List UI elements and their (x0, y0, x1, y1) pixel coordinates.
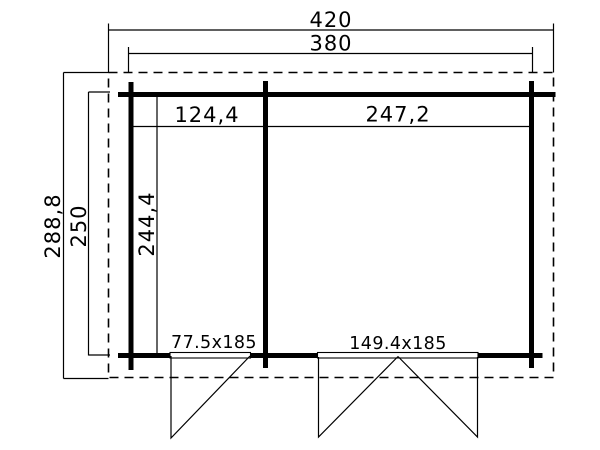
double-door: 149.4x185 (318, 334, 479, 437)
dim-interior-depth-label: 244,4 (135, 191, 159, 256)
dim-wall-depth: 250 (67, 92, 110, 356)
dim-wall-depth-label: 250 (67, 204, 91, 247)
single-door-swing (171, 356, 250, 438)
dim-wall-width: 380 (129, 32, 533, 73)
dim-wall-width-label: 380 (309, 32, 352, 56)
dim-overall-depth-label: 288,8 (41, 193, 65, 258)
dim-left-bay-label: 124,4 (174, 103, 239, 127)
single-door-size-label: 77.5x185 (171, 333, 257, 353)
dim-overall-width-label: 420 (309, 8, 352, 32)
single-door: 77.5x185 (170, 333, 257, 438)
double-door-size-label: 149.4x185 (349, 334, 446, 354)
floor-plan-canvas: 420 380 288,8 250 124,4 247,2 (0, 0, 600, 450)
floor-plan-drawing: 420 380 288,8 250 124,4 247,2 (0, 0, 600, 450)
dim-right-bay-label: 247,2 (365, 103, 430, 127)
dim-bay-widths: 124,4 247,2 (131, 103, 532, 128)
dim-interior-depth: 244,4 (135, 97, 159, 353)
double-door-right-leaf-swing (398, 357, 478, 438)
double-door-left-leaf-swing (319, 357, 399, 438)
single-door-opening (170, 353, 251, 359)
